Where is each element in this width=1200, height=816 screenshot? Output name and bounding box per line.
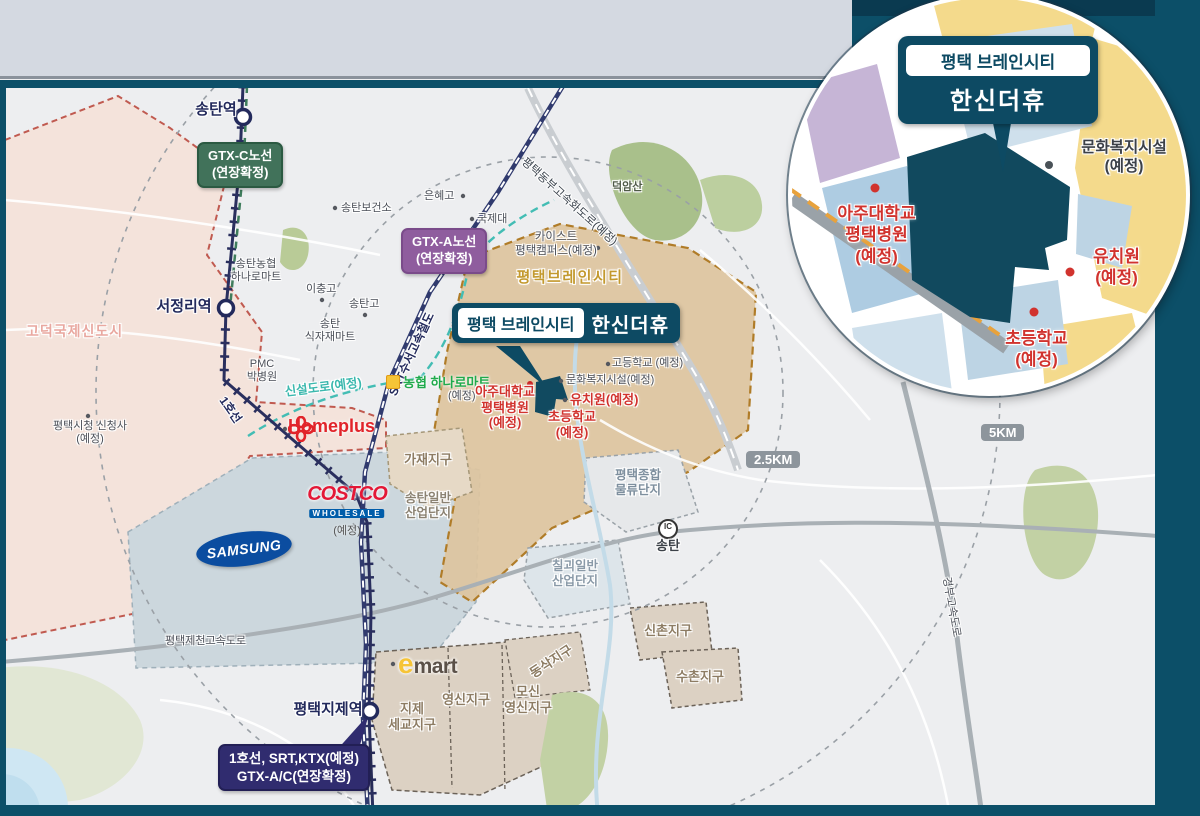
area-cityhall: 평택시청 신청사 (예정) (53, 420, 127, 446)
distance-badge-5km: 5KM (981, 424, 1024, 441)
poi-eunhye: 은혜고 (424, 190, 454, 203)
emart-mart: mart (414, 655, 458, 679)
poi-ichung: 이충고 (306, 283, 336, 296)
emart-e: e (398, 650, 414, 678)
costco-note: (예정) (307, 522, 387, 538)
ic-songtan-label: 송탄 (656, 538, 680, 554)
costco-label: COSTCO (307, 485, 387, 503)
inset-callout-name: 한신더휴 (906, 81, 1090, 116)
road-jecheon-label: 평택제천고속도로 (165, 635, 246, 648)
poi-ajou: 아주대학교 평택병원 (예정) (475, 384, 535, 431)
samsung-label: SAMSUNG (206, 536, 282, 561)
station-seojeongri: 서정리역 (156, 298, 211, 316)
costco-wholesale-label: WHOLESALE (309, 509, 384, 518)
inset-callout: 평택 브레인시티 한신더휴 (898, 36, 1098, 124)
ic-symbol: IC (664, 522, 672, 532)
station-jije: 평택지제역 (293, 701, 362, 719)
inset-callout-area: 평택 브레인시티 (906, 45, 1090, 76)
inset-poi-elementary: 초등학교 (예정) (974, 328, 1099, 371)
homeplus-flower-icon (288, 416, 314, 442)
inset-poi-kindergarten: 유치원 (예정) (1054, 246, 1179, 289)
location-map: 송탄역 GTX-C노선 (연장확정) 서정리역 GTX-A노선 (연장확정) 고… (0, 0, 1200, 816)
area-gajae: 가재지구 (404, 452, 452, 468)
area-chilgoe: 칠괴일반 산업단지 (552, 559, 598, 589)
area-godeok: 고덕국제신도시 (26, 323, 123, 340)
brand-emart: emart (398, 650, 457, 679)
poi-kindergarten: 유치원(예정) (570, 392, 638, 408)
poi-songtango: 송탄고 (349, 298, 379, 311)
site-callout: 평택 브레인시티 한신더휴 (452, 303, 680, 343)
poi-culture: 문화복지시설(예정) (566, 374, 654, 387)
poi-highschool: 고등학교 (예정) (612, 357, 683, 370)
badge-gtx-a: GTX-A노선 (연장확정) (401, 228, 487, 274)
poi-kaist: 카이스트 평택캠퍼스(예정) (515, 231, 597, 259)
poi-bogeonso: 송탄보건소 (341, 202, 392, 215)
poi-sikjajae: 송탄 식자재마트 (305, 318, 356, 344)
area-mosin: 모신 영신지구 (504, 684, 552, 715)
inset-poi-culture: 문화복지시설 (예정) (1054, 138, 1190, 177)
area-jije-segyo: 지제 세교지구 (388, 701, 436, 732)
badge-jije-lines: 1호선, SRT,KTX(예정) GTX-A/C(연장확정) (218, 744, 370, 791)
inset-poi-ajou: 아주대학교 평택병원 (예정) (804, 203, 949, 267)
poi-gukje: 국제대 (477, 213, 507, 226)
hanaro-note: (예정) (448, 390, 476, 403)
area-suchon: 수촌지구 (676, 669, 724, 685)
site-callout-area: 평택 브레인시티 (458, 308, 584, 338)
area-yeongsin: 영신지구 (442, 692, 490, 708)
poi-nonghyup: 송탄농협 하나로마트 (231, 258, 282, 284)
brand-costco: COSTCO WHOLESALE (예정) (307, 485, 387, 538)
poi-deogam: 덕암산 (612, 181, 642, 194)
area-braincity: 평택브레인시티 (516, 269, 623, 287)
brand-homeplus: Homeplus (288, 416, 375, 437)
area-songtan-ind: 송탄일반 산업단지 (405, 491, 451, 521)
inset-detail-circle: 평택 브레인시티 한신더휴 문화복지시설 (예정) 아주대학교 평택병원 (예정… (788, 0, 1190, 396)
badge-gtx-c: GTX-C노선 (연장확정) (197, 142, 283, 188)
nh-icon (386, 375, 400, 389)
site-callout-name: 한신더휴 (592, 309, 670, 338)
poi-pmc: PMC 박병원 (247, 358, 277, 384)
station-songtan: 송탄역 (195, 101, 236, 119)
distance-badge-2-5km: 2.5KM (746, 451, 800, 468)
area-logistics: 평택종합 물류단지 (615, 468, 661, 498)
poi-elementary: 초등학교 (예정) (548, 409, 596, 440)
area-sinchon: 신촌지구 (644, 623, 692, 639)
